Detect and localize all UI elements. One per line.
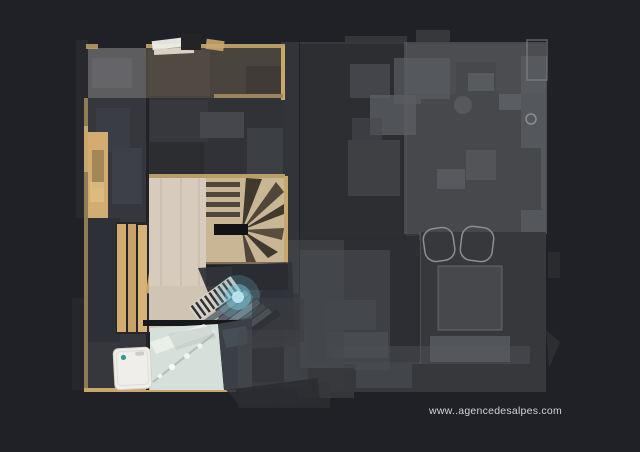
wood-cabinet (88, 132, 108, 218)
upper-interior (148, 96, 284, 180)
stair-void (214, 224, 248, 235)
sink (184, 353, 190, 359)
scan-glow (232, 291, 244, 303)
washing-machine (113, 347, 152, 390)
wood-wall-trim (281, 46, 285, 100)
active-floor[interactable] (84, 33, 320, 406)
floorplan-canvas (0, 0, 640, 452)
floorplan-image: www..agencedesalpes.com (0, 0, 640, 452)
watermark-url: www..agencedesalpes.com (429, 405, 562, 417)
spiral-staircase[interactable] (206, 176, 288, 265)
ghost-bed (438, 266, 502, 330)
dark-box (181, 33, 201, 50)
sink (169, 364, 175, 370)
